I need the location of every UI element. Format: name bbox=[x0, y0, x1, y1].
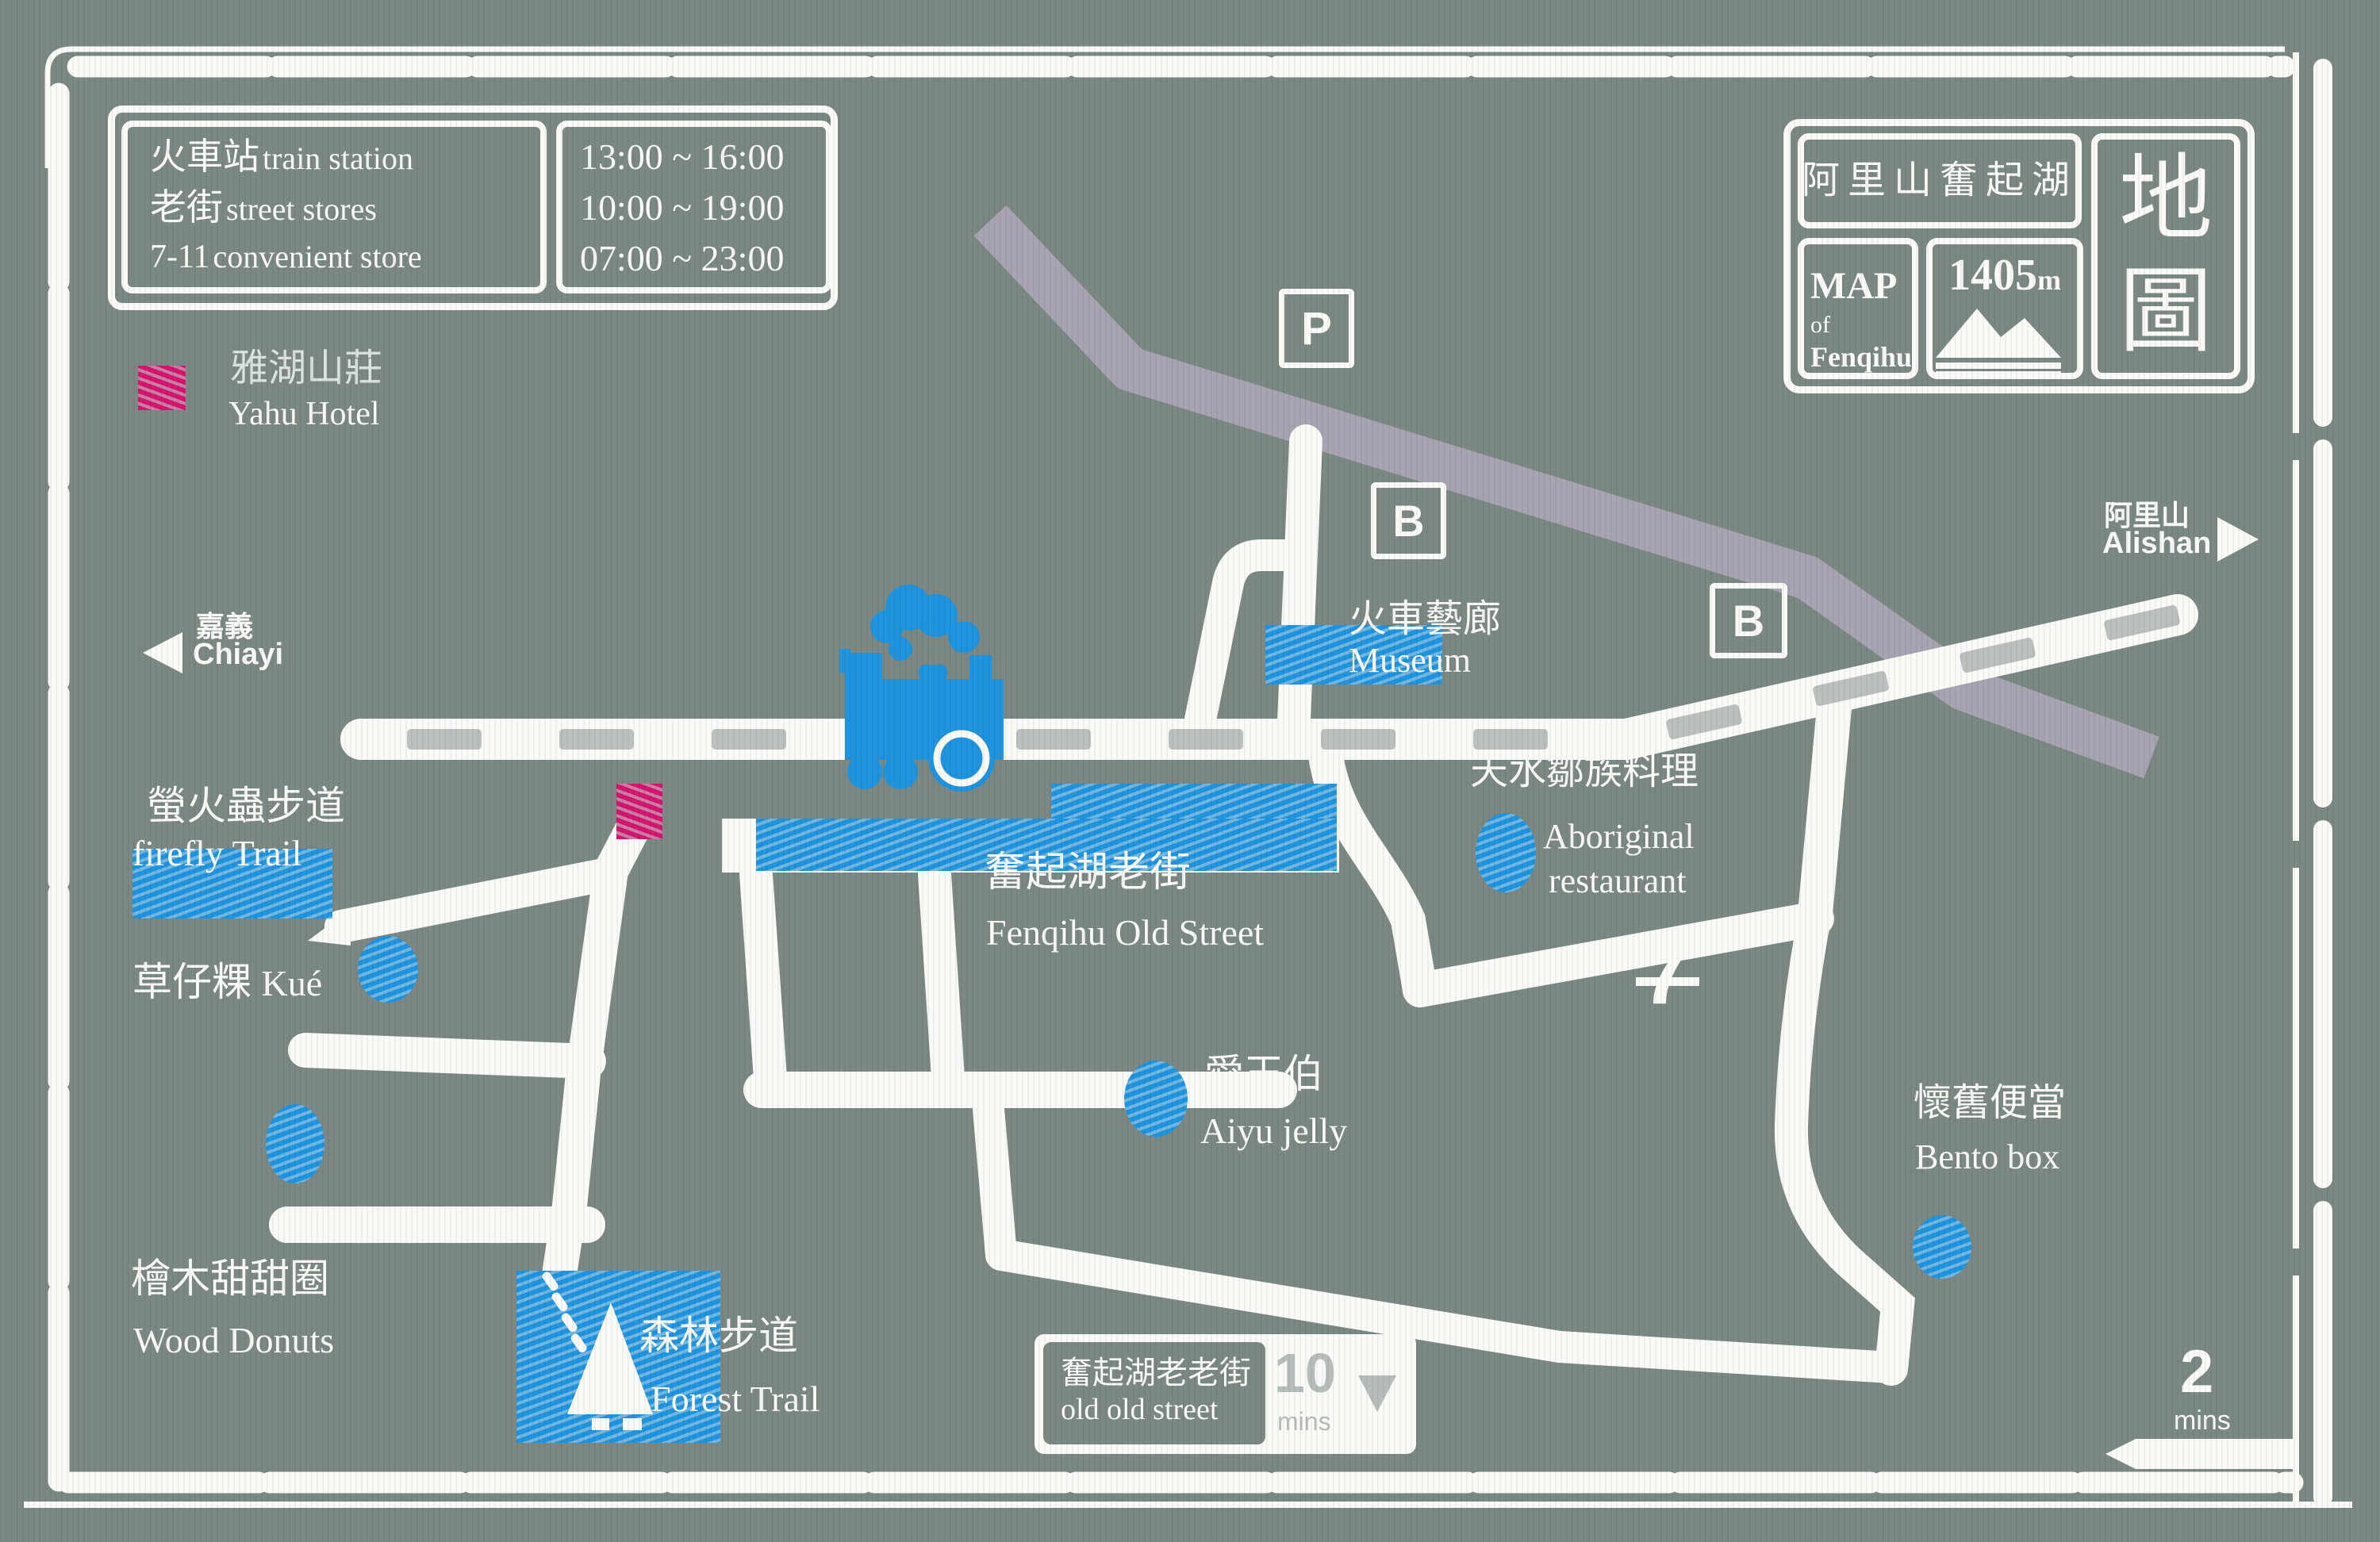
road-lane-middle bbox=[935, 874, 949, 1090]
title-ditu-char2: 圖 bbox=[2119, 256, 2213, 369]
route-7-numeral: 7 bbox=[1641, 926, 1690, 1020]
mountain-icon bbox=[1933, 302, 2064, 375]
parking-icon[interactable]: P bbox=[1279, 289, 1354, 368]
old-old-street-inner: 奮起湖老老街 old old street bbox=[1043, 1342, 1265, 1444]
wood-donuts-label-zh: 檜木甜甜圈 bbox=[131, 1258, 329, 1300]
old-old-street-en: old old street bbox=[1061, 1394, 1265, 1426]
old-street-label-zh: 奮起湖老街 bbox=[985, 852, 1191, 896]
old-old-street-unit: mins bbox=[1277, 1407, 1331, 1437]
walk-direction-icon bbox=[1358, 1375, 1396, 1412]
kue-label-zh: 草仔粿 bbox=[132, 960, 251, 1004]
route-7-crossbar bbox=[1636, 977, 1699, 986]
road-parking bbox=[1293, 441, 1306, 739]
hours-places-cell: 火車站 train station 老街 street stores 7-11 … bbox=[121, 121, 547, 293]
kue-marker[interactable] bbox=[358, 936, 418, 1003]
forest-label-zh: 森林步道 bbox=[639, 1315, 798, 1357]
trail-dashes-icon bbox=[541, 1271, 589, 1354]
museum-label-en: Museum bbox=[1349, 642, 1471, 679]
bento-label-en: Bento box bbox=[1915, 1139, 2059, 1176]
bento-box-marker[interactable] bbox=[1913, 1215, 1971, 1279]
title-elevation-cell: 1405m bbox=[1926, 238, 2083, 379]
kue-label-en: Kué bbox=[262, 963, 323, 1003]
map-title-box: 阿里山奮起湖 MAP of Fenqihu 1405m 地 圖 bbox=[1783, 119, 2255, 393]
corner-walk-minutes: 2 bbox=[2180, 1342, 2213, 1402]
kue-label: 草仔粿 Kué bbox=[132, 961, 322, 1003]
hours-row-zh: 7-11 bbox=[150, 239, 209, 275]
bus-letter: B bbox=[1392, 495, 1424, 547]
title-place-word: Fenqihu bbox=[1810, 343, 1912, 373]
hours-times-cell: 13:00 ~ 16:00 10:00 ~ 19:00 07:00 ~ 23:0… bbox=[556, 121, 832, 293]
alishan-arrow-icon bbox=[2217, 517, 2259, 562]
corner-walk-unit: mins bbox=[2174, 1406, 2231, 1437]
hours-row-en: train station bbox=[263, 140, 413, 176]
hours-time: 07:00 ~ 23:00 bbox=[580, 240, 826, 290]
aboriginal-label-zh: 天水鄒族料理 bbox=[1470, 752, 1699, 792]
hours-row-zh: 火車站 bbox=[150, 136, 259, 177]
road-corner-pointed bbox=[2106, 1439, 2299, 1469]
old-old-street-zh: 奮起湖老老街 bbox=[1061, 1356, 1265, 1390]
road-lane-west bbox=[756, 874, 771, 1090]
title-map-word: MAP bbox=[1810, 267, 1912, 306]
title-ditu-cell: 地 圖 bbox=[2091, 133, 2240, 379]
aiyu-label-zh: 愛玉伯 bbox=[1204, 1053, 1323, 1095]
road-lane-south bbox=[988, 1109, 1001, 1255]
title-map-cell: MAP of Fenqihu bbox=[1798, 238, 1918, 379]
road-bottom-east bbox=[1560, 1347, 1891, 1367]
chiayi-arrow-icon bbox=[143, 632, 182, 673]
elevation-value: 1405m bbox=[1933, 252, 2077, 299]
bento-label-zh: 懷舊便當 bbox=[1914, 1084, 2066, 1123]
old-street-label-en: Fenqihu Old Street bbox=[986, 914, 1264, 952]
road-kue bbox=[305, 1050, 589, 1061]
road-museum-curve bbox=[1326, 760, 1420, 990]
road-junction-north bbox=[1815, 708, 1834, 914]
hours-row-zh: 老街 bbox=[150, 187, 223, 228]
title-region-cell: 阿里山奮起湖 bbox=[1798, 133, 2082, 228]
hours-info-box: 火車站 train station 老街 street stores 7-11 … bbox=[108, 105, 838, 310]
hours-row-en: street stores bbox=[226, 191, 377, 227]
yahu-hotel-marker[interactable] bbox=[616, 784, 662, 839]
old-old-street-box: 奮起湖老老街 old old street 10 mins bbox=[1035, 1334, 1416, 1454]
aboriginal-label-en2: restaurant bbox=[1549, 863, 1686, 899]
road-junction-south bbox=[1791, 914, 1898, 1369]
steam-train-icon bbox=[825, 577, 1039, 807]
fenqihu-tourist-map: P B B 7 火車站 train station 老街 street stor… bbox=[0, 0, 2380, 1542]
old-street-area-upper bbox=[1051, 784, 1337, 819]
aboriginal-label-en1: Aboriginal bbox=[1543, 819, 1695, 855]
road-aiyu-east bbox=[1420, 919, 1817, 990]
aiyu-label-en: Aiyu jelly bbox=[1200, 1112, 1347, 1150]
road-firefly bbox=[341, 874, 608, 926]
aiyu-jelly-marker[interactable] bbox=[1124, 1061, 1188, 1137]
hours-row-en: convenient store bbox=[213, 239, 421, 274]
aboriginal-restaurant-marker[interactable] bbox=[1476, 813, 1536, 892]
yahu-hotel-legend-swatch bbox=[138, 366, 186, 410]
forest-label-en: Forest Trail bbox=[651, 1380, 820, 1418]
alishan-label-en: Alishan bbox=[2102, 528, 2211, 560]
title-of-word: of bbox=[1810, 313, 1912, 338]
title-region-zh: 阿里山奮起湖 bbox=[1802, 161, 2078, 201]
road-diagonal-south bbox=[1001, 1255, 1560, 1347]
wood-donuts-label-en: Wood Donuts bbox=[133, 1321, 334, 1360]
yahu-hotel-label-en: Yahu Hotel bbox=[228, 397, 380, 432]
title-ditu-char1: 地 bbox=[2119, 144, 2213, 256]
firefly-label-zh: 螢火蟲步道 bbox=[147, 785, 345, 827]
bus-stop-icon-west[interactable]: B bbox=[1371, 482, 1446, 559]
firefly-label-en: firefly Trail bbox=[132, 834, 301, 873]
museum-label-zh: 火車藝廊 bbox=[1349, 600, 1501, 639]
hours-time: 13:00 ~ 16:00 bbox=[580, 138, 826, 189]
hours-time: 10:00 ~ 19:00 bbox=[580, 189, 826, 240]
parking-letter: P bbox=[1301, 302, 1332, 355]
chiayi-label-en: Chiayi bbox=[193, 639, 283, 671]
yahu-hotel-label-zh: 雅湖山莊 bbox=[230, 349, 382, 389]
wood-donuts-marker[interactable] bbox=[266, 1104, 324, 1183]
bus-letter: B bbox=[1733, 595, 1764, 646]
bus-stop-icon-east[interactable]: B bbox=[1710, 583, 1787, 658]
old-old-street-minutes: 10 bbox=[1274, 1345, 1336, 1401]
